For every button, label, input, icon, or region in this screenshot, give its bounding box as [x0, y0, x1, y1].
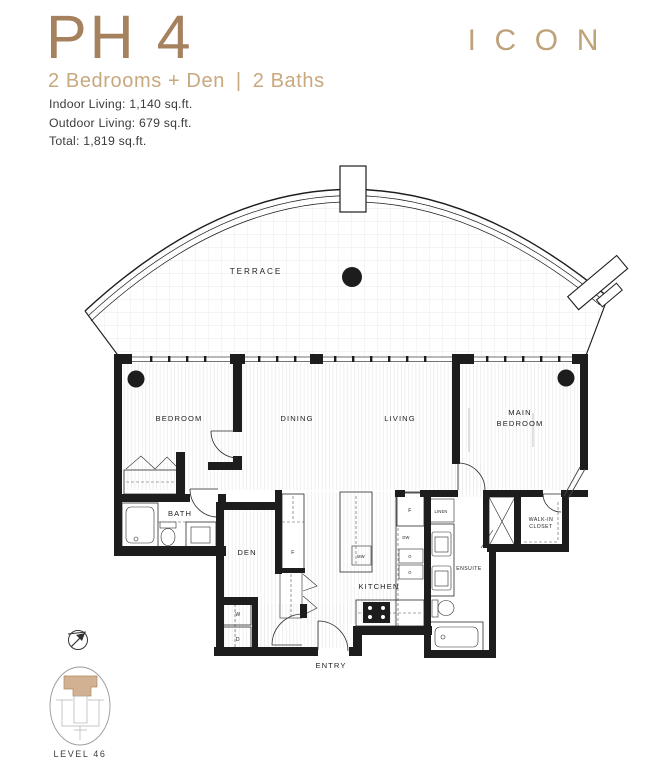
ensuite-vanity	[430, 524, 454, 596]
terrace-label: TERRACE	[230, 267, 282, 276]
walkin-label-1: WALK-IN	[529, 517, 554, 523]
bath-vanity	[158, 522, 216, 547]
kitchen-label: KITCHEN	[358, 582, 399, 591]
ensuite-tub	[430, 622, 483, 651]
terrace-notch	[340, 166, 366, 212]
living-label: LIVING	[384, 414, 416, 423]
bath-toilet	[160, 522, 176, 546]
floorplan-page: PH 4 2 Bedrooms + Den|2 Baths Indoor Liv…	[0, 0, 647, 768]
bedroom-column	[128, 371, 145, 388]
washer-label: W	[235, 612, 240, 618]
keyplan: LEVEL 46	[50, 667, 110, 759]
dishwasher-label: DW	[402, 535, 409, 540]
north-arrow-icon	[68, 631, 88, 650]
keyplan-floorplate	[56, 696, 104, 740]
dining-label: DINING	[280, 414, 313, 423]
fridge-label: F	[291, 550, 295, 556]
linen-label: LINEN	[434, 509, 447, 514]
main-bedroom-label-2: BEDROOM	[497, 419, 544, 428]
ensuite-toilet	[432, 600, 454, 617]
fridge-cabinet: F	[282, 494, 304, 570]
kitchen-counter: F DW O O	[396, 492, 425, 628]
linen-closet: LINEN	[428, 499, 454, 522]
keyplan-unit-highlight	[64, 676, 97, 696]
entry-label: ENTRY	[315, 661, 346, 670]
floorplan-drawing: TERRACE	[0, 0, 647, 768]
microwave-label: MW	[357, 554, 365, 559]
ensuite-label: ENSUITE	[456, 566, 482, 572]
main-bedroom-label-1: MAIN	[508, 408, 531, 417]
bedroom-label: BEDROOM	[156, 414, 203, 423]
bath-label: BATH	[168, 509, 192, 518]
oven-label-2: O	[408, 570, 411, 575]
walkin-label-2: CLOSET	[529, 524, 552, 530]
floor-hatch	[122, 363, 578, 648]
counter-fridge-label: F	[408, 508, 412, 514]
dryer-label: D	[236, 637, 240, 643]
oven-label-1: O	[408, 554, 411, 559]
cooktop	[356, 600, 424, 626]
keyplan-level-label: LEVEL 46	[54, 749, 107, 759]
bath-tub	[122, 503, 158, 547]
den-label: DEN	[237, 548, 256, 557]
terrace-column	[342, 267, 362, 287]
main-bedroom-column	[558, 370, 575, 387]
